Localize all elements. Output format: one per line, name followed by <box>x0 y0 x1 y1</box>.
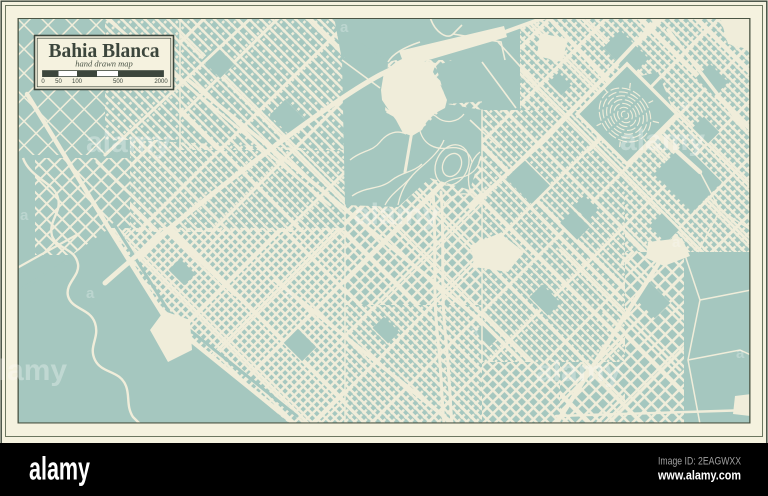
svg-text:500: 500 <box>113 79 124 85</box>
svg-text:a: a <box>20 207 29 224</box>
svg-text:alamy: alamy <box>29 451 90 487</box>
svg-text:a: a <box>284 285 293 302</box>
svg-text:2000: 2000 <box>154 79 168 85</box>
svg-text:alamy: alamy <box>86 126 171 159</box>
svg-text:Image ID: 2EAGWXX: Image ID: 2EAGWXX <box>658 456 742 468</box>
svg-text:a: a <box>680 97 689 114</box>
svg-text:100: 100 <box>72 79 83 85</box>
svg-text:a: a <box>470 322 479 339</box>
svg-text:hand drawn map: hand drawn map <box>75 59 133 69</box>
svg-text:a: a <box>736 345 745 362</box>
svg-text:alamy: alamy <box>620 124 705 157</box>
svg-text:a: a <box>672 234 681 251</box>
svg-text:alamy: alamy <box>0 354 67 387</box>
svg-text:www.alamy.com: www.alamy.com <box>657 469 741 483</box>
svg-text:a: a <box>340 19 349 36</box>
svg-text:alamy: alamy <box>354 198 439 231</box>
svg-text:alamy: alamy <box>536 355 621 388</box>
svg-text:50: 50 <box>55 79 62 85</box>
svg-text:a: a <box>86 285 95 302</box>
